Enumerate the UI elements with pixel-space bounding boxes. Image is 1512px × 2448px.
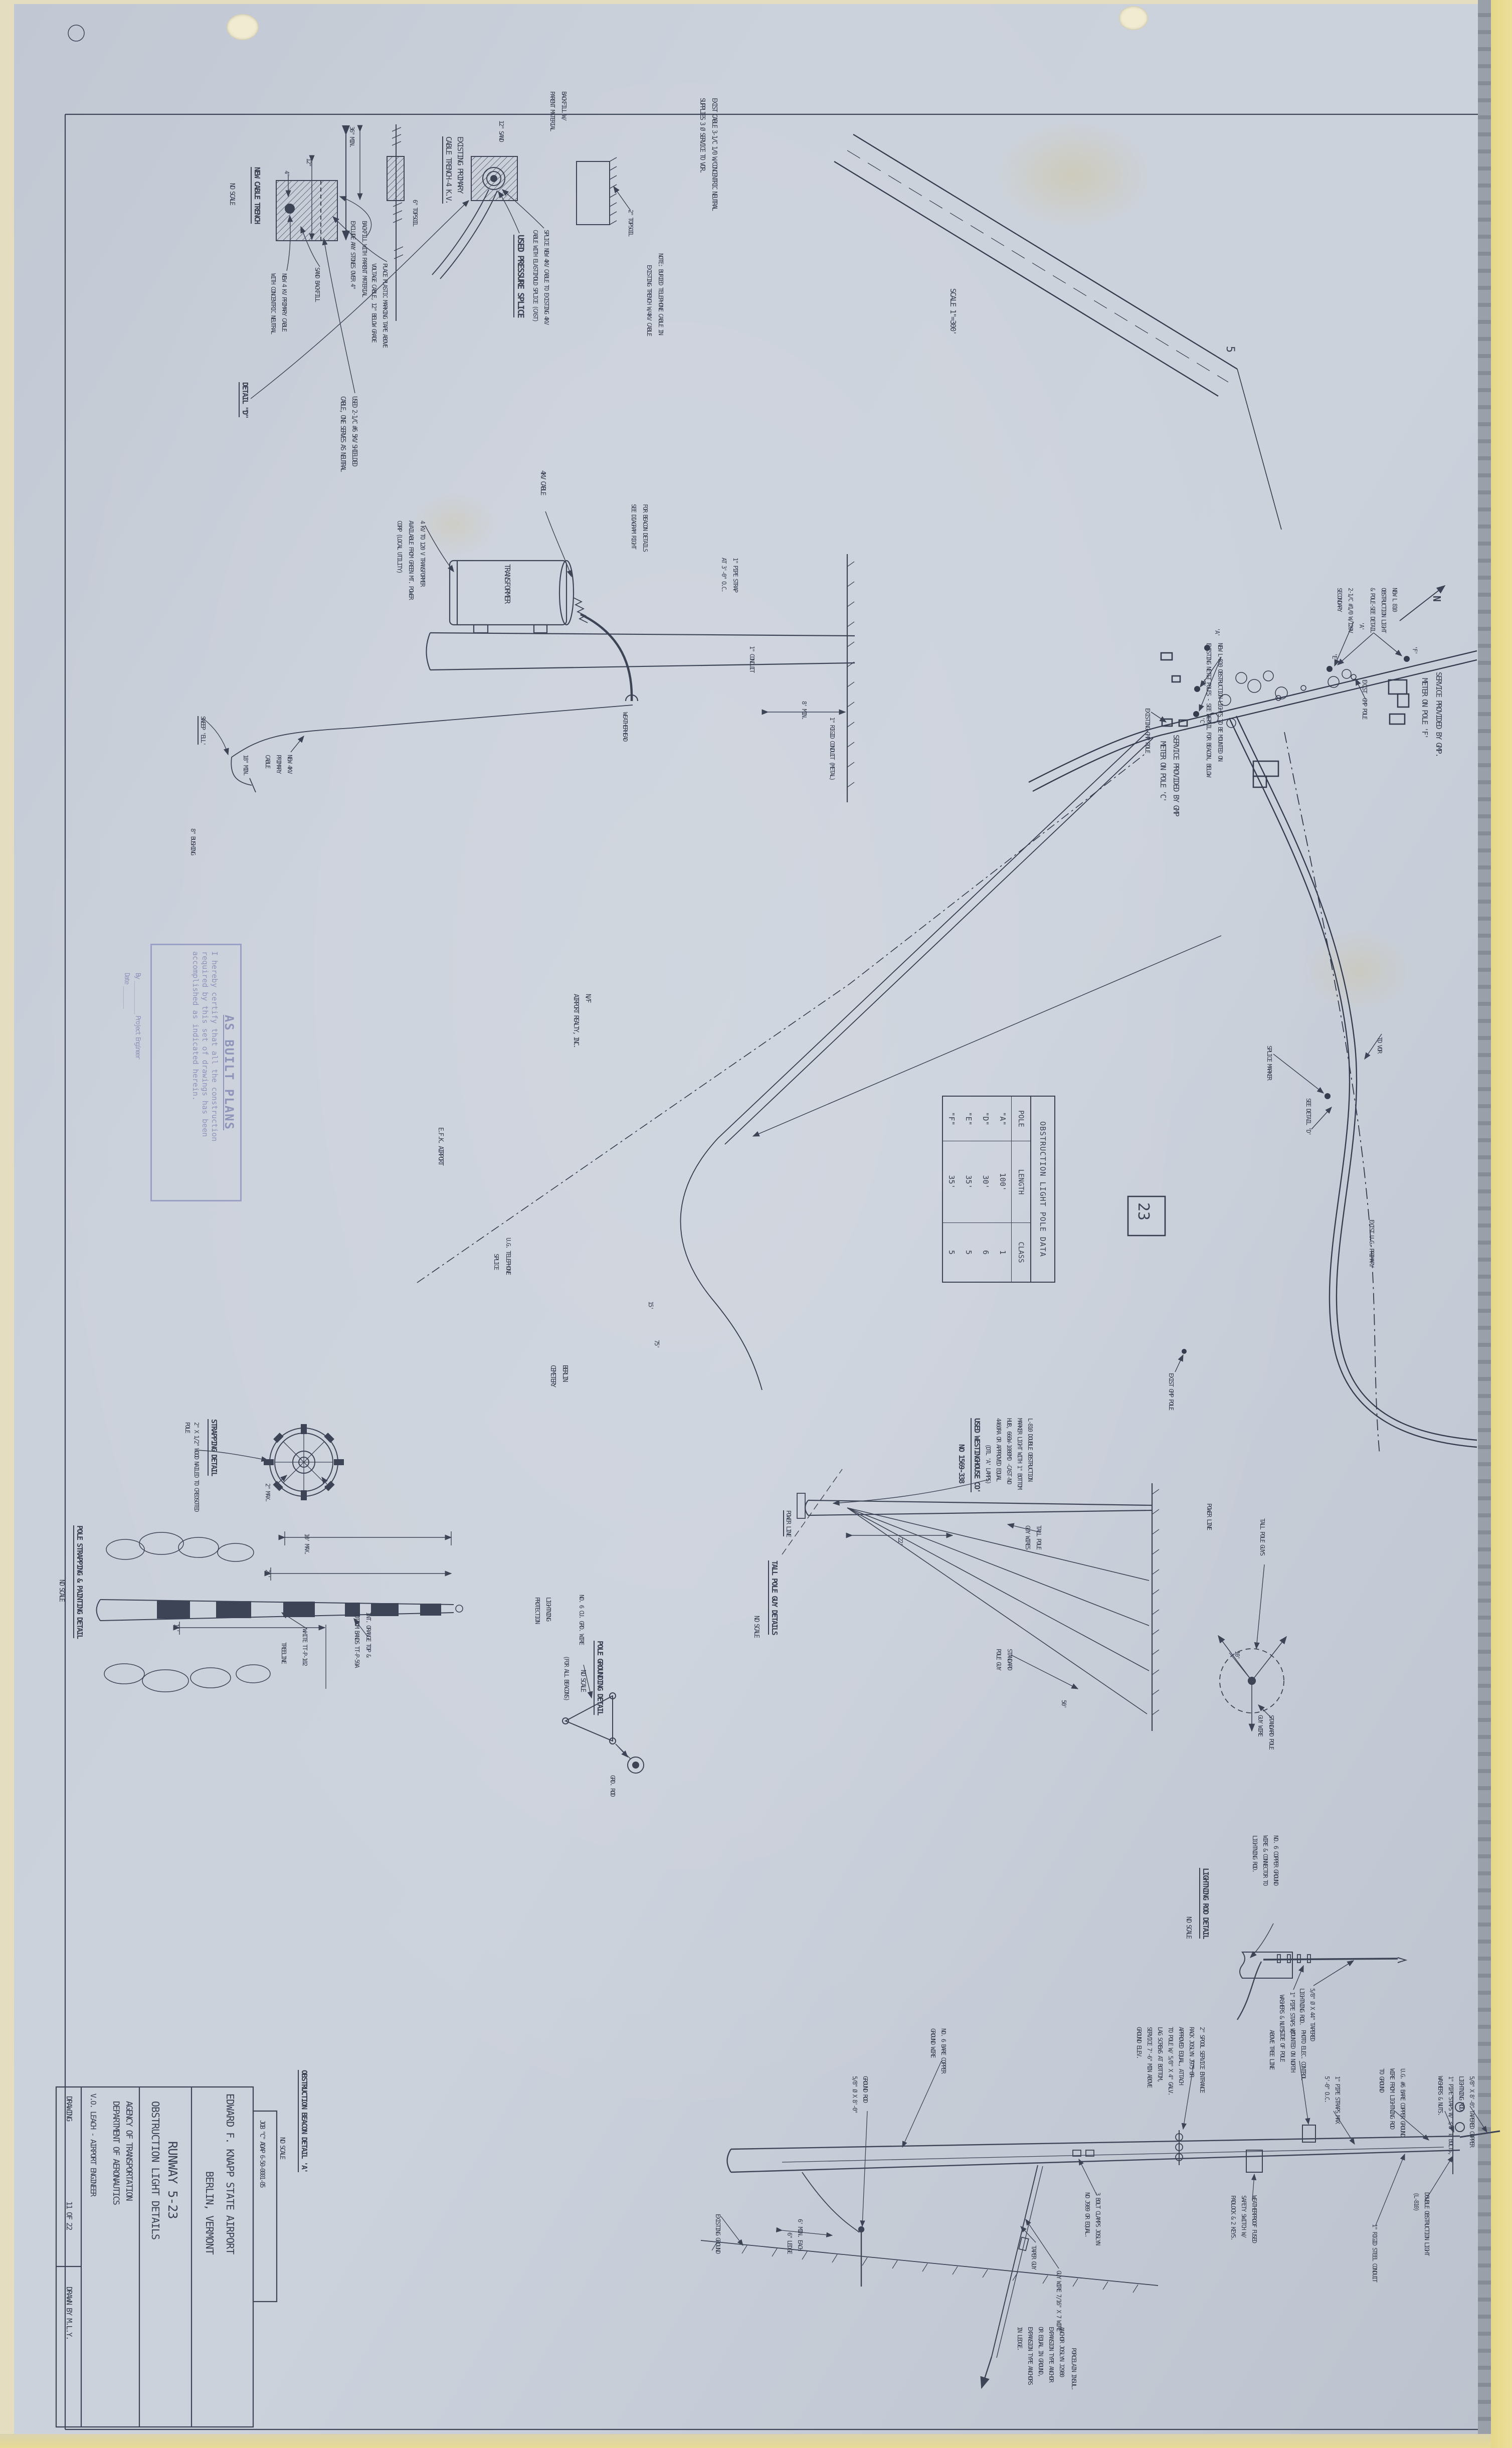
pole-data-table: OBSTRUCTION LIGHT POLE DATA POLE LENGTH … xyxy=(941,1096,1055,1284)
new-l810-3: & POLE-SEE DETAIL xyxy=(1370,588,1376,632)
pole-f: 'F' xyxy=(1412,646,1418,654)
grounding-scale: NO SCALE xyxy=(580,1670,586,1691)
label-sand-backfill: SAND BACKFILL xyxy=(314,267,320,301)
cell: 100' xyxy=(994,1141,1011,1222)
bc-rack-1: 2" SPOOL SERVICE ENTRANCE xyxy=(1199,2027,1205,2092)
bc-photo-1: PHOTO ELEC. CONTROL xyxy=(1300,2030,1306,2079)
bc-double-1: DOUBLE OBSTRUCTION LIGHT xyxy=(1424,2192,1430,2255)
westinghouse-leader xyxy=(833,1479,990,1503)
cemetery-1: BERLIN xyxy=(561,1365,568,1381)
bc-rack-2: RACK JOSLYN J975 OR xyxy=(1189,2027,1195,2076)
bc-anchor-1: ANCHOR JOSLYN J2980 xyxy=(1059,2327,1065,2376)
ug-telephone-2: SPLICE xyxy=(493,1254,499,1269)
strapping-note-1: 2" X 1/2" WOOD NAILED TO CREOSOTED xyxy=(194,1422,200,1511)
label-new4kv-b: PRIMARY xyxy=(276,755,282,773)
tb-airport: EDWARD F. KNAPP STATE AIRPORT xyxy=(225,2093,235,2254)
bc-pstrap-2: 5'-0" O.C. xyxy=(1324,2076,1330,2102)
efk-airport: E.F.K. AIRPORT xyxy=(437,1127,444,1165)
painting-title: POLE STRAPPING & PAINTING DETAIL xyxy=(73,1525,83,1638)
label-sweep-ell: SWEEP 'ELL' xyxy=(198,716,206,745)
pole-table-title: OBSTRUCTION LIGHT POLE DATA xyxy=(1030,1097,1054,1282)
bc-switch-3: PADLOCK & 2 KEYS. xyxy=(1230,2195,1236,2240)
pole-a: 'A' xyxy=(1214,628,1220,636)
tall-pole-guys: TALL POLE GUYS xyxy=(1259,1518,1265,1555)
bc-rod-1: 5/8" X 8'-0" TAPERED COPPER xyxy=(1469,2076,1475,2147)
dim-21: 21' xyxy=(265,1569,271,1578)
beacon-scale: NO SCALE xyxy=(279,2137,285,2159)
label-weatherhead: WEATHERHEAD xyxy=(622,712,628,741)
nf-2: AIRPORT REALTY, INC. xyxy=(573,994,579,1047)
secondary-1: 2-1/C #1/0 W/120V xyxy=(1348,588,1354,632)
label-new4kv-2: WITH CONCENTRIC NEUTRAL xyxy=(270,273,276,333)
xfmr-note-1: 4 KV TO 120 V TRANSFORMER xyxy=(420,520,426,586)
label-tel-note-1: NOTE: BURIED TELEPHONE CABLE IN xyxy=(658,253,664,334)
pressure-splice-title: USED PRESSURE SPLICE xyxy=(513,235,524,317)
dim-18min: 18" MIN. xyxy=(243,755,249,776)
exist-cable-section xyxy=(577,157,631,225)
detail-d-ref: DETAIL "D" xyxy=(239,382,249,417)
cell: 5 xyxy=(960,1222,977,1282)
label-used-cable-1: USED 2-1/C #6 5KV SHIELDED xyxy=(351,396,357,466)
bc-ug-3: TO GROUND xyxy=(1379,2068,1385,2092)
splice-note-2: CABLE WITH ELASTIMOLD SPLICE (CAST) xyxy=(532,230,538,321)
map-scale: SCALE 1"=300' xyxy=(949,288,957,334)
bc-rack-3: APPROVED EQUAL, ATTACH xyxy=(1178,2027,1184,2084)
bc-photo-2: MOUNTED ON NORTH xyxy=(1290,2030,1296,2072)
lr-scale: NO SCALE xyxy=(1185,1916,1192,1938)
tb-runway: RUNWAY 5-23 xyxy=(166,2141,179,2219)
label-2in-topsoil: 2" TOPSOIL xyxy=(628,210,634,236)
strapping-note-2: POLE xyxy=(184,1422,191,1433)
strapping-title: STRAPPING DETAIL xyxy=(208,1419,218,1476)
label-exist-cable-1: EXIST CABLE 3-1/C 1/0 W/CONCENTRIC NEUTR… xyxy=(711,98,717,210)
label-new4kv-a: NEW 4KV xyxy=(287,755,293,773)
tb-sheet-no: 11 OF 22 xyxy=(65,2201,73,2229)
wh-5: (DTL 'A' LAMPS) xyxy=(985,1444,991,1483)
bc-switch-2: SAFETY SWITCH W/ xyxy=(1241,2195,1247,2237)
ref-23: 23 xyxy=(1136,1202,1151,1220)
cell: 35' xyxy=(960,1141,977,1222)
bc-gw-2: GROUND WIRE xyxy=(930,2028,936,2057)
lightning-prot-1: LIGHTNING xyxy=(545,1597,551,1621)
beacon-ref-2: SEE DIAGRAM RIGHT xyxy=(631,504,637,549)
mounted-1: NEW L-810 OBSTRUCTION LIGHTS TO BE MOUNT… xyxy=(1217,643,1223,761)
dim-11: 11' xyxy=(173,1624,179,1632)
std-pole-1: STANDARD POLE xyxy=(1268,1715,1274,1749)
transformer-drawing xyxy=(203,511,855,802)
dim-4: 4" xyxy=(284,170,290,176)
tb-engineer: V.O. LEACH - AIRPORT ENGINEER xyxy=(89,2093,97,2196)
dim-22: 22' xyxy=(897,1537,903,1545)
dim-36min: 36" MIN. xyxy=(349,126,355,147)
see-detail-d: SEE DETAIL 'D' xyxy=(1305,1098,1311,1135)
wh-4: 4460RA OR APPROVED EQUAL xyxy=(996,1418,1002,1481)
wh-used-1: USED WESTINGHOUSE CO' xyxy=(971,1418,981,1492)
painting-scale: NO SCALE xyxy=(58,1580,65,1601)
wh-2: MARKER LIGHT WITH 1" BOTTOM xyxy=(1017,1418,1023,1489)
exist-ug-primary: EXIST U.G. PRIMARY xyxy=(1369,1219,1375,1267)
bc-rigid: 1" RIGID STEEL CONDUIT xyxy=(1372,2224,1378,2282)
cell: 35' xyxy=(943,1141,960,1222)
label-backfill-w-1: BACKFILL W/ xyxy=(561,91,567,120)
new-trench-scale: NO SCALE xyxy=(229,183,235,205)
svc-pole-c-1: SERVICE PROVIDED BY GMP xyxy=(1172,735,1180,816)
linework xyxy=(0,0,1512,2448)
svc-pole-f-1: SERVICE PROVIDED BY GMP. xyxy=(1435,672,1442,757)
xfmr-note-3: CORP (LOCAL UTILITY) xyxy=(397,520,403,573)
stamp-title: AS BUILT PLANS xyxy=(222,951,236,1194)
dim-50: 50' xyxy=(1061,1700,1067,1708)
stamp-date-line: Date ________ xyxy=(123,973,130,1007)
label-used-cable-2: CABLE, ONE SERVES AS NEUTRAL xyxy=(339,396,346,471)
tall-guy-wires-2: GUY WIRES xyxy=(1025,1525,1031,1549)
new-l810-4: 'A' xyxy=(1359,622,1365,630)
tb-city: BERLIN, VERMONT xyxy=(205,2171,215,2254)
col-pole: POLE xyxy=(1011,1097,1030,1141)
std-guy-1: STANDARD xyxy=(1007,1649,1013,1670)
nf-1: N/F xyxy=(585,994,591,1002)
stamp-by-line: By ____________ Project Engineer xyxy=(134,973,141,1058)
strapping-dim-2: 2" xyxy=(324,1485,330,1490)
grounding-title: POLE GROUNDING DETAIL xyxy=(594,1641,604,1715)
bc-rack-5: LAG SCREWS AT BOTTOM, xyxy=(1157,2027,1163,2082)
label-orange-2: BOTTOM BANDS TT-P-59A xyxy=(354,1612,360,1667)
label-orange-1: INT. ORANGE TOP & xyxy=(365,1612,371,1657)
col-class: CLASS xyxy=(1011,1222,1030,1282)
tb-sheet-title: OBSTRUCTION LIGHT DETAILS xyxy=(150,2101,160,2239)
xfmr-note-2: AVAILABLE FROM GREEN MT. POWER xyxy=(408,520,414,599)
label-backfill-2: EXCLUDE ANY STONES OVER 4" xyxy=(350,221,356,289)
cemetery-2: CEMETERY xyxy=(549,1365,556,1386)
bc-photo-3: SIDE OF POLE xyxy=(1279,2030,1285,2061)
dim-75: 75' xyxy=(654,1340,660,1348)
label-new4kv-1: NEW 4 KV PRIMARY CABLE xyxy=(281,273,287,331)
tall-guy-scale: NO SCALE xyxy=(753,1616,760,1637)
bc-grod-2: 5/8" Ø X 8'-0" xyxy=(852,2076,858,2113)
bc-taper: TAPER GUY xyxy=(1031,2245,1037,2269)
tall-guy-wires-1: TALL POLE xyxy=(1036,1525,1042,1549)
lightning-prot-2: PROTECTION xyxy=(534,1597,540,1623)
dim-8min: 8' MIN. xyxy=(801,701,807,720)
beacon-ref-1: FOR BEACON DETAILS xyxy=(642,504,648,551)
std-guy-2: POLE GUY xyxy=(996,1649,1002,1670)
label-rigid-conduit: 1" RIGID CONDUIT (METAL) xyxy=(829,717,835,780)
stamp-line-2: required by this set of drawings has bee… xyxy=(201,951,210,1194)
label-exist-cable-2: SUPPLIES 3 Ø SERVICE TO VOR. xyxy=(699,98,705,172)
existing-gmp-pole: EXISTING GMP POLE xyxy=(1145,708,1151,753)
bc-porc: PORCELAIN INSUL. xyxy=(1071,2348,1077,2390)
label-6-topsoil: 6" TOPSOIL xyxy=(412,200,418,226)
bc-rack-7: GROUND ELEV. xyxy=(1136,2027,1142,2058)
lr-g2: WIRE & CONNECTOR TO xyxy=(1262,1835,1268,1885)
wh-used-2: NO 1569-338 xyxy=(958,1444,965,1483)
transformer-label: TRANSFORMER xyxy=(503,564,511,603)
blueprint-sheet: EXIST CABLE 3-1/C 1/0 W/CONCENTRIC NEUTR… xyxy=(0,0,1512,2448)
cell: "A" xyxy=(994,1097,1011,1141)
dim-15: 15' xyxy=(648,1301,654,1309)
grounding-wire: NO. 6 CU. GRD. WIRE xyxy=(579,1595,585,1644)
lr-r2: LIGHTNING ROD. xyxy=(1299,1988,1305,2025)
grounding-note: (FOR ALL BEACONS) xyxy=(563,1656,570,1700)
bc-anchor-4: EXPANSION TYPE ANCHORS xyxy=(1027,2327,1033,2384)
bc-gw-1: NO. 6 BARE COPPER xyxy=(940,2028,947,2073)
bc-existing-ground: EXISTING GROUND xyxy=(715,2214,721,2253)
pole-painting-drawing xyxy=(97,1531,463,1692)
north-label: N xyxy=(1432,596,1442,601)
cell: "F" xyxy=(943,1097,960,1141)
as-built-stamp: AS BUILT PLANS I hereby certify that all… xyxy=(148,944,242,1199)
exist-gmp-pole-3: EXIST GMP POLE xyxy=(1168,1373,1174,1410)
bc-ledge: 6" LEDGE xyxy=(787,2232,793,2253)
lr-r1: 5/8" Ø X 44" TAPERED xyxy=(1309,1988,1315,2041)
dim-10r: 10' xyxy=(1234,1651,1240,1659)
frame xyxy=(56,25,1478,2429)
cell: 6 xyxy=(977,1222,994,1282)
cell: "E" xyxy=(960,1097,977,1141)
bc-clamp-2: NO J989 OR EQUAL. xyxy=(1084,2192,1090,2237)
label-tel-note-2: EXISTING TRENCH W/4KV CABLE xyxy=(646,265,652,335)
cell: 5 xyxy=(943,1222,960,1282)
bc-ug-1: U.G. #6 BARE COPPER GROUND xyxy=(1400,2068,1406,2137)
wh-3: HUB, 660W-1080MD -CAST-NO xyxy=(1006,1418,1012,1484)
bc-guy: GUY WIRE 7/16" X 7 WIRE xyxy=(1056,2270,1062,2331)
to-vor: TO VOR xyxy=(1377,1037,1383,1053)
tall-guy-title: TALL POLE GUY DETAILS xyxy=(768,1560,778,1635)
tb-job: JOB "C" ADAP 6-50-0001-05 xyxy=(259,2120,265,2187)
bc-ug-2: WIRE FROM LIGHTNING ROD xyxy=(1389,2068,1395,2129)
bc-clamp-1: 3 BOLT CLAMPS JOSLYN xyxy=(1095,2192,1101,2245)
col-length: LENGTH xyxy=(1011,1141,1030,1222)
stamp-line-3: accomplished as indicated herein. xyxy=(191,951,201,1194)
lr-g1: NO. 6 COPPER GROUND xyxy=(1273,1835,1279,1885)
lr-s1: 1" PIPE STAPS W/ xyxy=(1289,1992,1295,2034)
bc-photo-4: ABOVE TREE LINE xyxy=(1269,2030,1275,2069)
bc-pstrap-1: 1" PIPE STRAPS MAX xyxy=(1335,2076,1341,2123)
cell: "D" xyxy=(977,1097,994,1141)
tb-drawn-by: DRAWN BY M.L.Y. xyxy=(65,2287,73,2339)
power-line-2: POWER LINE xyxy=(1206,1503,1212,1529)
label-bushing: 8" BUSHING xyxy=(190,828,196,854)
runway-5: 5 xyxy=(1224,346,1235,352)
tb-department: DEPARTMENT OF AERONAUTICS xyxy=(111,2101,120,2204)
bc-double-2: (L-810) xyxy=(1413,2192,1419,2211)
new-l810-1: NEW L 810 xyxy=(1392,588,1398,611)
mounted-2: EXISTING NET&T POLES - SEE DETAIL FOR BE… xyxy=(1206,643,1212,776)
power-line-1: POWER LINE xyxy=(783,1510,792,1536)
label-treeline: TREELINE xyxy=(281,1642,287,1663)
dim-12: 12" xyxy=(306,158,312,166)
bc-grod-1: GROUND ROD xyxy=(862,2076,868,2102)
cell: 1 xyxy=(994,1222,1011,1282)
pole-c: 'C' xyxy=(1199,717,1205,725)
grounding-rod: GRD. ROD xyxy=(610,1775,616,1796)
tb-agency: AGENCY OF TRANSPORTATION xyxy=(124,2101,133,2200)
bc-6min: 6' MIN. EACH xyxy=(797,2219,803,2250)
svc-pole-c-2: METER ON POLE 'C' xyxy=(1159,741,1167,801)
label-tape-2: VOLTAGE CABLE, 12" BELOW GRADE xyxy=(371,263,377,342)
pipe-strap-1: 1" PIPE STRAP xyxy=(732,558,738,592)
tb-drawing-label: DRAWING xyxy=(65,2096,73,2121)
exist-gmp-pole-1: EXIST. GMP POLE xyxy=(1362,679,1368,719)
bc-staps-2: WASHERS & NUTS. xyxy=(1437,2076,1443,2115)
bc-staps-1: 1" PIPE STAPS W/ 3/8" Ø BOLTS, xyxy=(1448,2076,1454,2155)
lr-s2: WASHERS & NUTS xyxy=(1279,1995,1285,2031)
new-trench-title: NEW CABLE TRENCH xyxy=(251,167,261,224)
bc-switch-1: WEATHERPROOF FUSED xyxy=(1251,2195,1257,2242)
bc-anchor-2: EXPANSION TYPE ANCHOR xyxy=(1048,2327,1054,2382)
beacon-title: OBSTRUCTION BEACON DETAIL 'A' xyxy=(298,2070,308,2172)
splice-marker: SPLICE MARKER xyxy=(1266,1045,1272,1080)
strapping-dim-1: 2" MAX. xyxy=(265,1483,271,1502)
label-backfill-w-2: PARENT MATERIAL xyxy=(549,91,555,130)
label-1-conduit: 1" CONDUIT xyxy=(749,646,755,672)
pipe-strap-2: AT 3'-0" O.C. xyxy=(721,558,727,592)
bc-rack-6: SERVICE 7'-6" MIN ABOVE xyxy=(1147,2027,1153,2087)
std-pole-2: GUY WIRE xyxy=(1257,1715,1263,1736)
svc-pole-f-2: METER ON POLE 'F' xyxy=(1421,678,1428,738)
label-backfill-1: BACKFILL WITH PARENT MATERIAL xyxy=(361,221,367,297)
label-4kv-cable: 4KV CABLE xyxy=(539,470,546,494)
label-white-paint: WHITE TT-P-102 xyxy=(302,1629,308,1665)
pole-e: 'E' xyxy=(1332,653,1338,661)
wh-1: L-810 DOUBLE OBSTRUCTION xyxy=(1027,1418,1033,1481)
new-l810-2: OBSTRUCTION LIGHT xyxy=(1381,588,1387,632)
lr-title: LIGHTNING ROD DETAIL xyxy=(1199,1868,1209,1939)
bc-anchor-3: OR EQUAL IN GROUND, xyxy=(1038,2327,1044,2376)
lr-g3: LIGHTNING ROD. xyxy=(1252,1835,1258,1872)
cell: 30' xyxy=(977,1141,994,1222)
label-12-sand: 12" SAND xyxy=(498,120,504,141)
bc-anchor-5: IN LEDGE. xyxy=(1017,2327,1023,2350)
dim-10max: 10' MAX. xyxy=(304,1533,310,1554)
stamp-line-1: I hereby certify that all the constructi… xyxy=(210,951,219,1194)
bc-rack-4: TO POLE W/ 5/8" X 4" GALV. xyxy=(1168,2027,1174,2095)
bc-rod-2: LIGHTNING ROD. xyxy=(1458,2076,1464,2113)
splice-note-1: SPLICE NEW 4KV CABLE TO EXISTING 4KV xyxy=(543,230,549,324)
ug-telephone-1: U.G. TELEPHONE xyxy=(505,1238,511,1274)
secondary-2: SECONDARY xyxy=(1337,588,1343,611)
pole-b: 'B' xyxy=(1200,678,1206,686)
exist-trench-title-2: CABLE TRENCH-4 K.V. xyxy=(442,136,452,204)
label-tape-1: PLACE PLASTIC MARKING TAPE ABOVE xyxy=(382,263,388,347)
exist-trench-title-1: EXISTING PRIMARY xyxy=(456,136,464,193)
label-new4kv-c: CABLE xyxy=(265,755,271,768)
